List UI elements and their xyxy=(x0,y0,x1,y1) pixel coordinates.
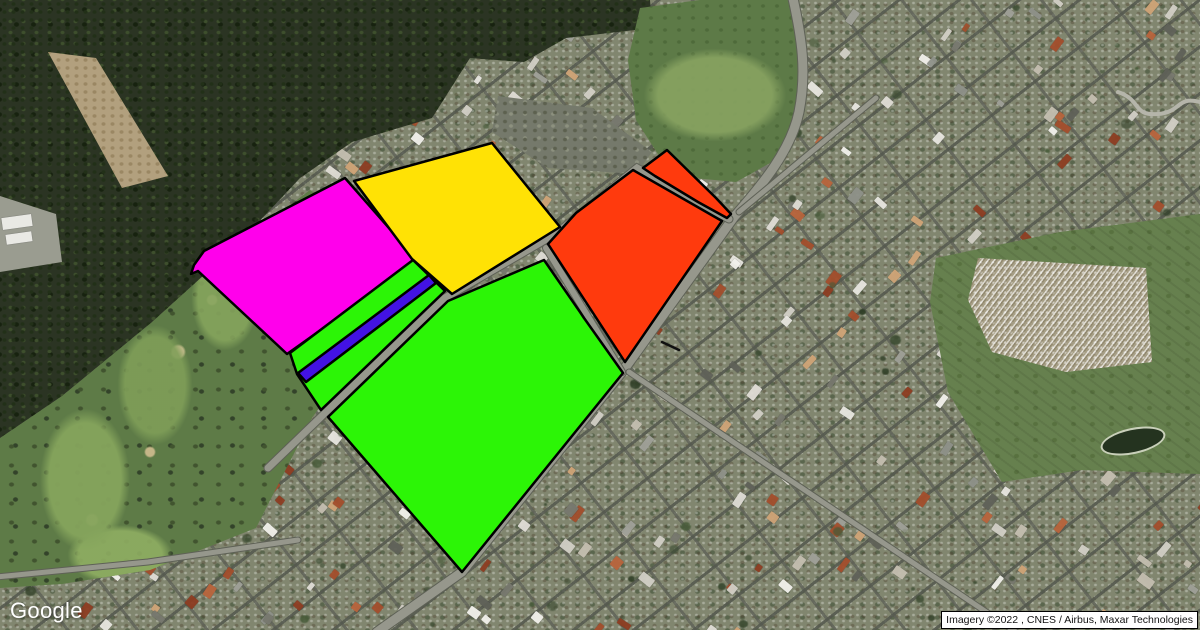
stray-mark xyxy=(662,342,679,350)
parcel-overlays xyxy=(0,0,1200,630)
imagery-attribution: Imagery ©2022 , CNES / Airbus, Maxar Tec… xyxy=(941,611,1198,629)
google-logo[interactable]: Google xyxy=(10,598,83,624)
map-canvas[interactable]: Google Imagery ©2022 , CNES / Airbus, Ma… xyxy=(0,0,1200,630)
